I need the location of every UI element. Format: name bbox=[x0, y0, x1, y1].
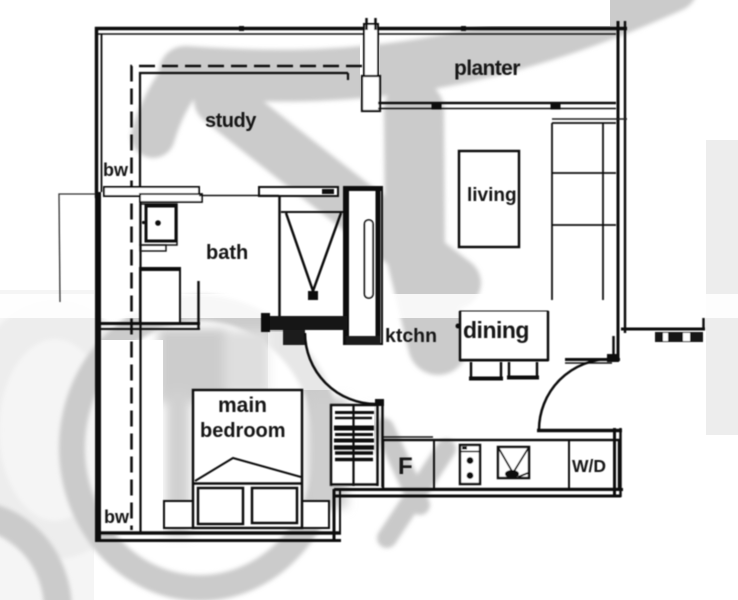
svg-text:study: study bbox=[205, 110, 257, 132]
svg-text:bw: bw bbox=[104, 507, 130, 527]
svg-text:bedroom: bedroom bbox=[200, 420, 286, 442]
svg-text:W/D: W/D bbox=[572, 456, 606, 476]
svg-text:bath: bath bbox=[206, 242, 248, 264]
svg-text:ktchn: ktchn bbox=[385, 325, 437, 347]
svg-text:planter: planter bbox=[454, 57, 520, 80]
svg-text:F: F bbox=[398, 453, 413, 480]
svg-text:bw: bw bbox=[103, 160, 129, 180]
svg-text:living: living bbox=[467, 185, 517, 206]
svg-text:main: main bbox=[218, 394, 267, 417]
svg-text:dining: dining bbox=[463, 317, 529, 343]
